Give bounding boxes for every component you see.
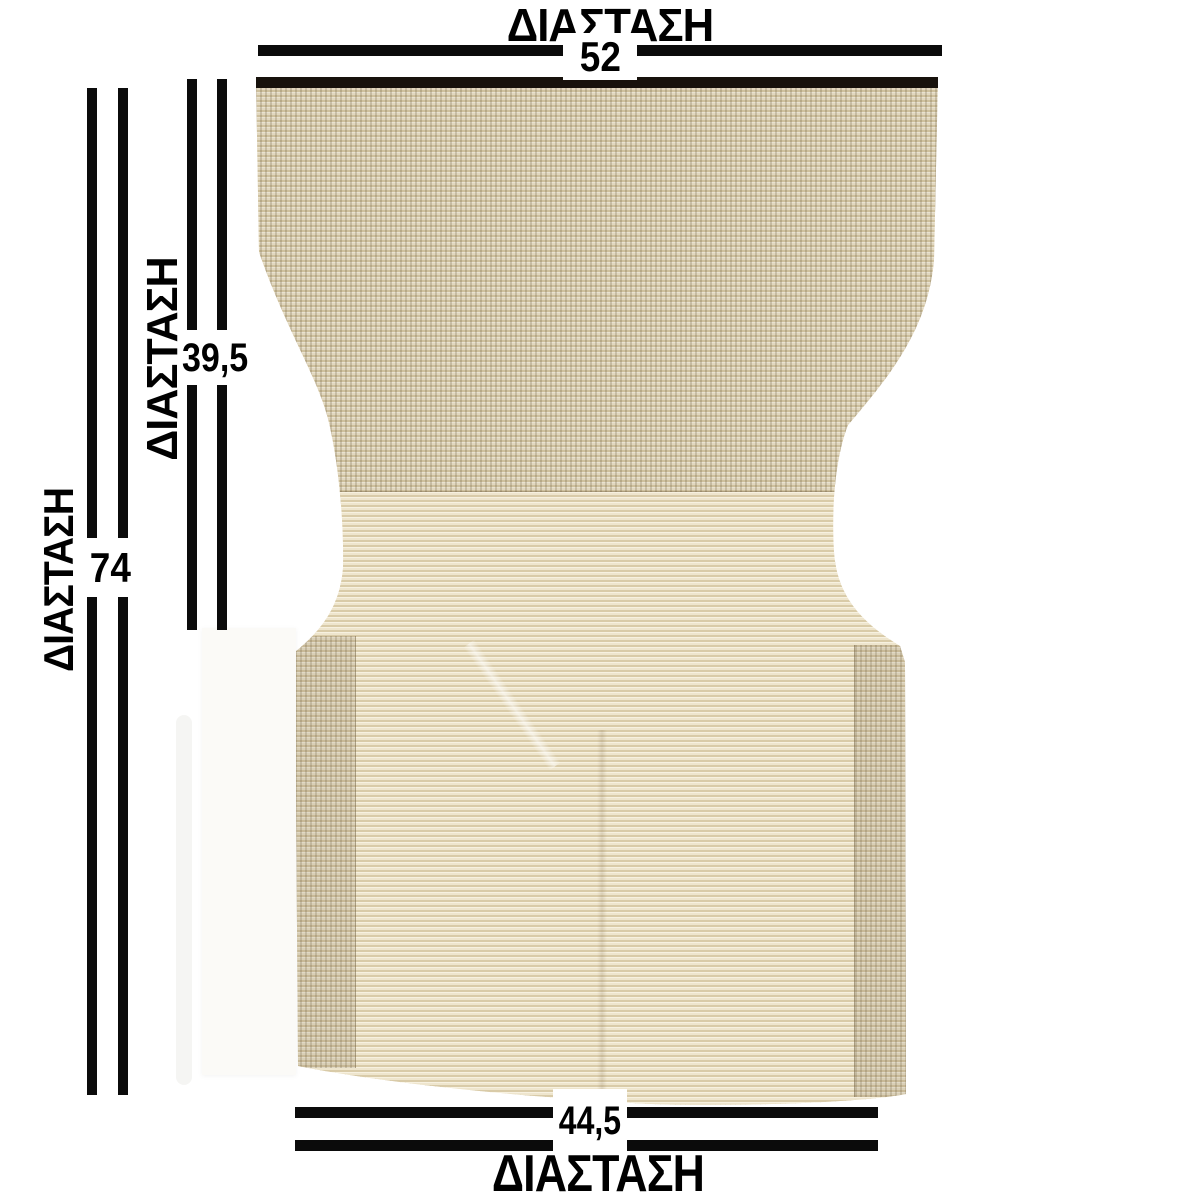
fabric-diagonal-crease [463,640,561,771]
white-patch [202,628,296,1075]
dimension-diagram: ΔΙΑΣΤΑΣΗ 52 ΔΙΑΣΤΑΣΗ 74 ΔΙΑΣΤΑΣΗ 39,5 44… [0,0,1200,1200]
fabric-center-crease [597,730,607,1102]
bottom-dimension-label: ΔΙΑΣΤΑΣΗ [492,1148,704,1200]
left-outer-dimension-value: 74 [89,547,130,589]
left-outer-dimension-label: ΔΙΑΣΤΑΣΗ [38,488,80,672]
fabric-left-fold-shade [295,636,356,1068]
left-inner-dimension-value-box: 39,5 [178,330,264,385]
top-dimension-value: 52 [579,36,620,78]
top-dimension-value-box: 52 [563,33,637,80]
left-inner-dimension-value: 39,5 [182,338,248,378]
bottom-dimension-value-box: 44,5 [553,1089,627,1152]
faint-shadow-streak [176,715,192,1085]
fabric-right-fold-shade [854,645,907,1097]
left-outer-dimension-value-box: 74 [78,538,142,597]
fabric-backrest-section [240,77,950,492]
bottom-dimension-value: 44,5 [559,1101,621,1141]
